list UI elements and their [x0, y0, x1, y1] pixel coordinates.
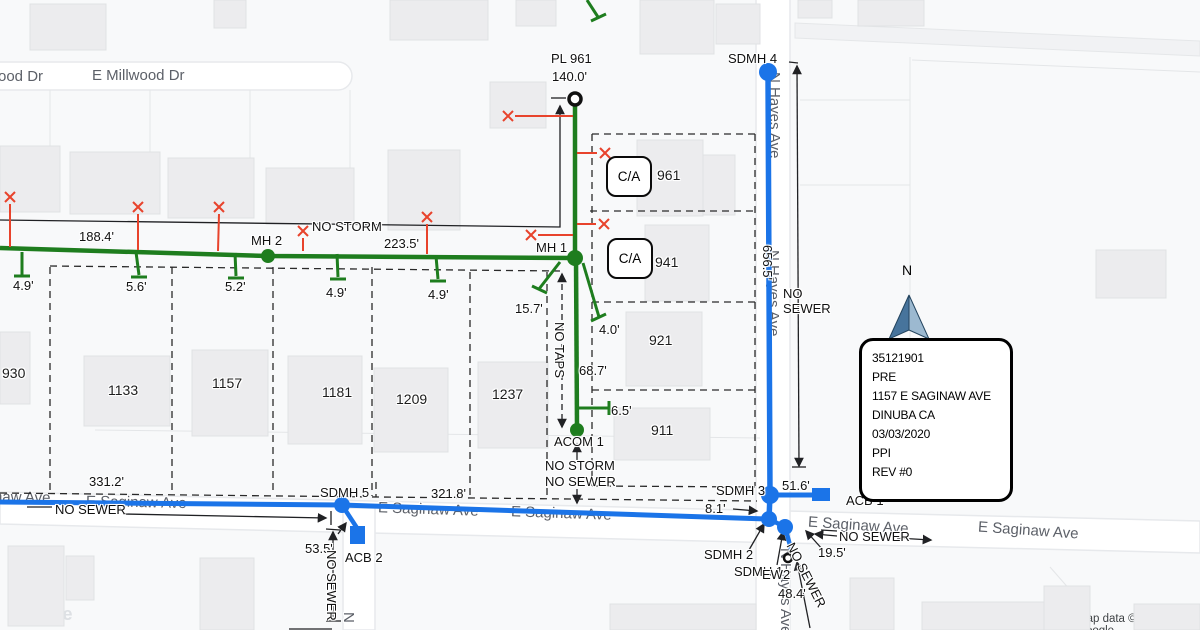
sdmh1-marker: [777, 519, 793, 535]
acb2-marker: [350, 526, 365, 544]
dim-188-4: 188.4': [79, 229, 114, 244]
map-canvas[interactable]: ood Dr E Millwood Dr naw Ave E Saginaw A…: [0, 0, 1200, 630]
dim-4-9-b: 4.9': [326, 285, 347, 300]
info-type: PPI: [872, 444, 1010, 463]
note-no-storm-center: NO STORM: [545, 458, 615, 473]
manhole-mh1-marker: [567, 250, 583, 266]
dim-4-9-c: 4.9': [428, 287, 449, 302]
project-info-box: 35121901 PRE 1157 E SAGINAW AVE DINUBA C…: [859, 338, 1013, 502]
label-pl961: PL 961: [551, 51, 592, 66]
ca-label-2: C/A: [619, 251, 642, 266]
house-930: 930: [2, 366, 25, 381]
ca-number-941: 941: [655, 255, 678, 270]
acb1-marker: [812, 488, 830, 501]
label-acom1: ACOM 1: [554, 434, 604, 449]
dim-51-6: 51.6': [782, 478, 810, 493]
note-no-sewer-left: NO SEWER: [55, 502, 126, 517]
label-acb2: ACB 2: [345, 550, 383, 565]
dim-48-4: 48.4': [778, 586, 806, 601]
dim-4-0: 4.0': [599, 322, 620, 337]
dim-68-7: 68.7': [579, 363, 607, 378]
label-mh1: MH 1: [536, 240, 567, 255]
info-city: DINUBA CA: [872, 406, 1010, 425]
common-area-box-941: C/A: [607, 238, 653, 279]
dim-8-1: 8.1': [705, 501, 726, 516]
label-sdmh4: SDMH 4: [728, 51, 777, 66]
info-phase: PRE: [872, 368, 1010, 387]
note-no-sewer-hayes: NO SEWER: [783, 286, 831, 316]
label-ew2: EW2: [762, 567, 790, 582]
house-1237: 1237: [492, 387, 523, 402]
dim-223-5: 223.5': [384, 236, 419, 251]
note-no-sewer-right: NO SEWER: [839, 529, 910, 544]
dim-656-5: 656.5': [760, 245, 775, 280]
property-line-endpoint-marker: [569, 93, 581, 105]
dim-140-0: 140.0': [552, 69, 587, 84]
north-arrow-icon: [880, 285, 940, 345]
house-1133: 1133: [108, 383, 138, 398]
dim-19-5: 19.5': [818, 545, 846, 560]
note-no-sewer-vertical: NO SEWER: [324, 550, 339, 621]
dim-5-2: 5.2': [225, 279, 246, 294]
utility-annotations: [0, 0, 1200, 630]
info-date: 03/03/2020: [872, 425, 1010, 444]
north-label: N: [902, 262, 912, 278]
manhole-mh2-marker: [261, 249, 275, 263]
dim-5-6: 5.6': [126, 279, 147, 294]
house-911: 911: [651, 423, 673, 438]
common-area-box-961: C/A: [606, 156, 652, 197]
ca-number-961: 961: [657, 168, 680, 183]
dim-321-8: 321.8': [431, 486, 466, 501]
house-1209: 1209: [396, 392, 427, 407]
note-no-taps: NO TAPS: [552, 322, 567, 378]
info-address: 1157 E SAGINAW AVE: [872, 387, 1010, 406]
house-1157: 1157: [212, 376, 242, 391]
dim-4-9-a: 4.9': [13, 278, 34, 293]
sewer-laterals: [14, 0, 609, 415]
label-sdmh5: SDMH 5: [320, 485, 369, 500]
house-921: 921: [649, 333, 672, 348]
label-sdmh2: SDMH 2: [704, 547, 753, 562]
label-mh2: MH 2: [251, 233, 282, 248]
dim-15-7: 15.7': [515, 301, 543, 316]
note-no-storm-top: NO STORM: [312, 219, 382, 234]
dim-331-2: 331.2': [89, 474, 124, 489]
label-sdmh3: SDMH 3: [716, 483, 765, 498]
dim-6-5: 6.5': [611, 403, 632, 418]
house-1181: 1181: [322, 385, 352, 400]
note-no-sewer-center: NO SEWER: [545, 474, 616, 489]
info-job-number: 35121901: [872, 349, 1010, 368]
sewer-main-green: [0, 0, 609, 428]
sdmh2-marker: [761, 511, 777, 527]
ca-label-1: C/A: [618, 169, 641, 184]
info-revision: REV #0: [872, 463, 1010, 482]
